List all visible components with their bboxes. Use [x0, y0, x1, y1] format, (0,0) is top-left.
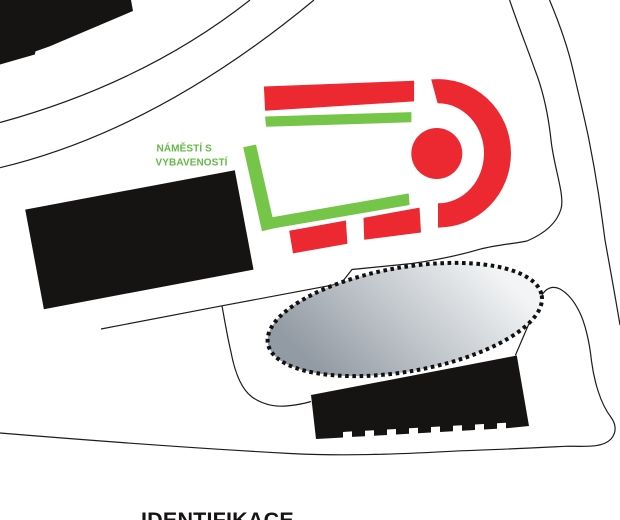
- svg-text:VYBAVENOSTÍ: VYBAVENOSTÍ: [156, 155, 228, 168]
- svg-text:NÁMĚSTÍ S: NÁMĚSTÍ S: [157, 141, 213, 154]
- svg-text:IDENTIFIKACE: IDENTIFIKACE: [141, 508, 294, 520]
